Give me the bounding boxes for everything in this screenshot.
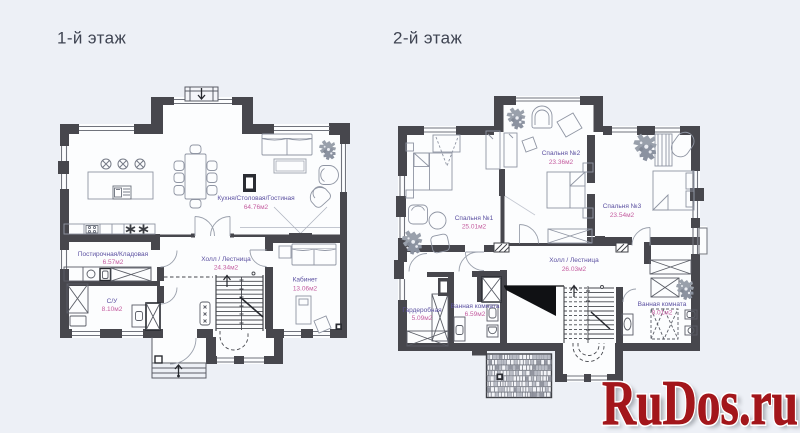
svg-text:С/У: С/У (107, 298, 119, 305)
svg-text:Холл / Лестница: Холл / Лестница (201, 256, 251, 263)
svg-text:26.03м2: 26.03м2 (562, 266, 587, 273)
svg-text:5.09м2: 5.09м2 (412, 315, 433, 322)
svg-text:Спальня №2: Спальня №2 (542, 150, 581, 157)
svg-text:Спальня №1: Спальня №1 (455, 215, 494, 222)
svg-text:Кухня/Столовая/Гостиная: Кухня/Столовая/Гостиная (217, 195, 295, 202)
svg-text:8.01м2: 8.01м2 (652, 310, 673, 317)
svg-text:24.34м2: 24.34м2 (214, 265, 239, 272)
svg-text:Ванная комната: Ванная комната (638, 301, 687, 308)
svg-text:Холл / Лестница: Холл / Лестница (549, 257, 599, 264)
svg-text:2-й этаж: 2-й этаж (393, 29, 462, 48)
svg-text:64.76м2: 64.76м2 (244, 204, 269, 211)
svg-text:13.06м2: 13.06м2 (293, 286, 318, 293)
svg-text:RuDos.ru: RuDos.ru (602, 367, 798, 433)
svg-text:Ванная комната: Ванная комната (451, 303, 500, 310)
svg-text:6.57м2: 6.57м2 (103, 259, 124, 266)
svg-text:6.59м2: 6.59м2 (465, 311, 486, 318)
svg-text:1-й этаж: 1-й этаж (57, 29, 126, 48)
svg-text:25.01м2: 25.01м2 (462, 224, 487, 231)
svg-text:8.10м2: 8.10м2 (102, 306, 123, 313)
svg-text:Спальня №3: Спальня №3 (603, 203, 642, 210)
svg-text:Гардеробная: Гардеробная (402, 306, 442, 314)
svg-text:23.54м2: 23.54м2 (610, 212, 635, 219)
svg-text:Постирочная/Кладовая: Постирочная/Кладовая (78, 251, 149, 258)
svg-text:Кабинет: Кабинет (293, 276, 318, 284)
svg-text:23.36м2: 23.36м2 (549, 159, 574, 166)
